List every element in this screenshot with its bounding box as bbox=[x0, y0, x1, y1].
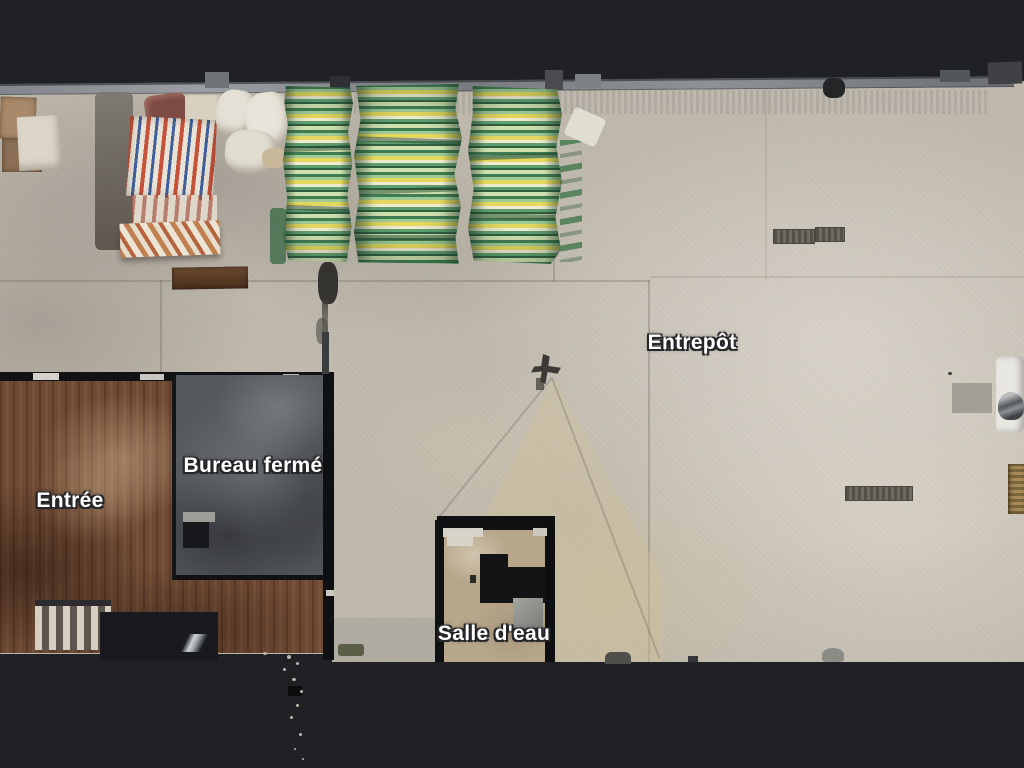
scatter-speck bbox=[296, 704, 299, 707]
scatter-speck bbox=[296, 662, 299, 665]
scatter-speck bbox=[263, 652, 267, 655]
green-fabric-remnant bbox=[270, 208, 286, 264]
wall-debris bbox=[205, 72, 229, 88]
scatter-speck bbox=[283, 668, 286, 671]
wall-debris bbox=[545, 70, 563, 90]
scatter-speck bbox=[292, 678, 296, 681]
storage-box-white bbox=[17, 115, 64, 171]
scatter-speck bbox=[300, 690, 303, 693]
striped-fabric-pallet-base bbox=[119, 220, 220, 257]
floor-grate bbox=[845, 486, 913, 501]
floor-seam bbox=[160, 280, 162, 376]
floor-grate bbox=[815, 227, 845, 242]
green-fabric-shading bbox=[283, 86, 353, 262]
bathroom-white-item bbox=[447, 532, 473, 546]
wall-debris bbox=[940, 70, 970, 82]
scatter-speck bbox=[294, 748, 296, 750]
scatter-speck bbox=[290, 716, 293, 719]
floor-stain-patch bbox=[952, 383, 992, 413]
wood-plank bbox=[172, 266, 248, 289]
green-fabric-shading bbox=[468, 86, 562, 264]
green-fabric-stack bbox=[283, 86, 353, 262]
rooms-block bbox=[0, 372, 334, 662]
striped-fabric-pallet bbox=[126, 116, 217, 200]
green-fabric-stack bbox=[468, 86, 562, 264]
room-label-salle-deau: Salle d'eau bbox=[438, 622, 550, 646]
green-fabric-fold bbox=[354, 235, 462, 240]
office-dark-box bbox=[183, 522, 209, 548]
wall-column bbox=[322, 332, 329, 374]
scan-artifact bbox=[318, 262, 338, 304]
wall-mark bbox=[326, 590, 334, 596]
wall-corner-piece bbox=[988, 61, 1023, 84]
wall-debris bbox=[575, 74, 601, 88]
floorplan-canvas[interactable]: Entrepôt Bureau fermé Entrée Salle d'eau bbox=[0, 0, 1024, 768]
scatter-speck bbox=[287, 655, 291, 659]
door-opening bbox=[33, 373, 59, 380]
room-label-entree: Entrée bbox=[36, 489, 103, 513]
edge-bump bbox=[605, 652, 631, 664]
green-fabric-remnant bbox=[560, 140, 582, 262]
scan-artifact bbox=[536, 378, 544, 390]
white-unit-fin bbox=[998, 392, 1024, 420]
white-bag-small bbox=[262, 148, 286, 168]
scatter-speck bbox=[302, 758, 304, 760]
bathroom-white-item bbox=[533, 528, 547, 536]
door-opening bbox=[140, 374, 164, 380]
room-label-bureau-ferme: Bureau fermé bbox=[184, 454, 323, 478]
wall-debris bbox=[823, 78, 845, 98]
scatter-speck bbox=[299, 733, 302, 736]
office-shelf bbox=[183, 512, 215, 522]
edge-bump bbox=[822, 648, 844, 662]
room-label-entrepot: Entrepôt bbox=[648, 331, 737, 355]
floor-seam bbox=[650, 276, 1024, 278]
bathroom-speck bbox=[470, 575, 476, 583]
green-fabric-stack bbox=[354, 84, 462, 264]
room-wall-right bbox=[323, 372, 334, 660]
floor-grate bbox=[773, 229, 815, 244]
stair-void-highlight bbox=[175, 634, 213, 652]
floor-speck bbox=[948, 372, 952, 375]
woven-basket-texture bbox=[1008, 464, 1024, 514]
debris-item bbox=[338, 644, 364, 656]
edge-bump bbox=[688, 656, 698, 662]
